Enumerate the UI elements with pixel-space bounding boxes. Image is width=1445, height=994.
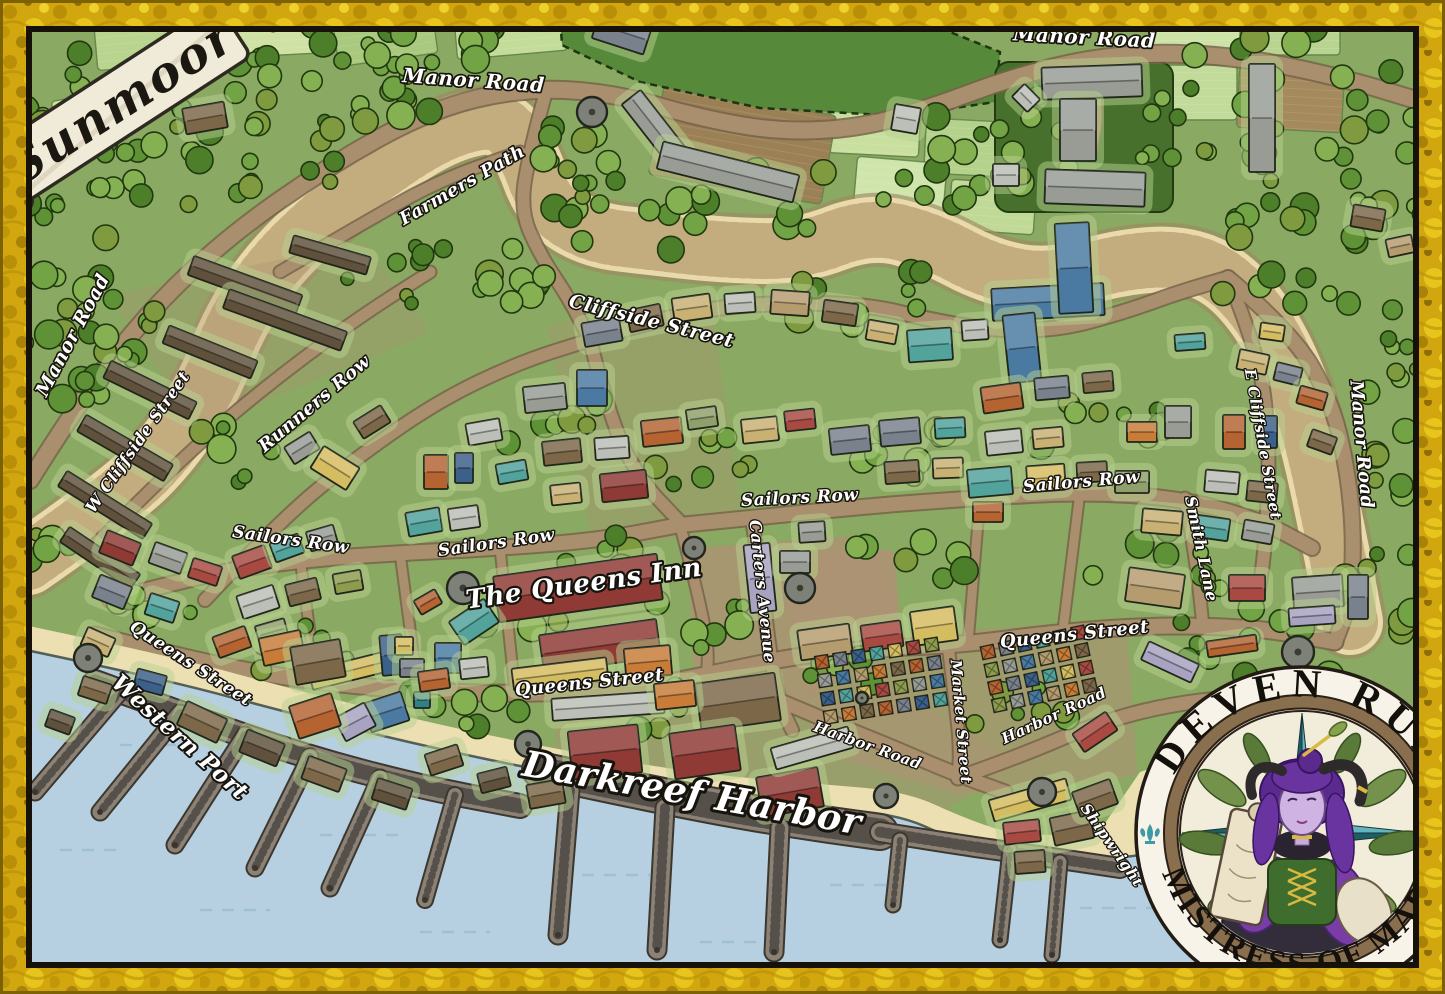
tree — [68, 41, 92, 65]
tree — [130, 184, 153, 207]
roof-highlight — [1127, 422, 1157, 432]
building — [1024, 418, 1073, 458]
tree — [1226, 224, 1252, 250]
building — [820, 416, 880, 464]
tree — [1366, 110, 1388, 132]
building — [870, 409, 929, 456]
tree — [1283, 291, 1307, 315]
tree — [1383, 300, 1403, 320]
tree — [1143, 104, 1161, 122]
tree — [323, 174, 338, 189]
building — [762, 281, 819, 325]
tree — [1154, 91, 1170, 107]
tree — [478, 271, 503, 296]
building — [447, 445, 481, 491]
tree — [1379, 60, 1403, 84]
building — [514, 374, 576, 422]
tree — [573, 175, 589, 191]
tree — [301, 162, 319, 180]
building — [1052, 91, 1104, 169]
tree — [258, 64, 282, 88]
tree — [186, 147, 213, 174]
tree — [811, 160, 836, 185]
tree — [1089, 403, 1108, 422]
tree — [902, 284, 915, 297]
dock-post — [555, 932, 561, 938]
tower-peak — [883, 793, 888, 798]
tree — [117, 144, 135, 162]
tree — [94, 324, 119, 349]
tree — [324, 151, 344, 171]
tree — [666, 476, 681, 491]
tree — [1296, 268, 1316, 288]
tree — [1315, 138, 1338, 161]
frame-left — [0, 0, 28, 994]
tree — [605, 525, 626, 546]
fantasy-town-map: Manor RoadManor RoadManor RoadManor Road… — [0, 0, 1445, 994]
tree — [388, 253, 406, 271]
building — [586, 427, 639, 468]
tree — [1400, 339, 1415, 354]
tree — [93, 225, 119, 251]
tree — [65, 66, 81, 82]
building — [813, 291, 868, 336]
tree — [387, 101, 415, 129]
building — [541, 474, 591, 515]
tree — [974, 127, 989, 142]
tree — [572, 128, 597, 153]
tree — [895, 169, 912, 186]
tree — [1340, 116, 1368, 144]
building — [976, 419, 1032, 464]
roof-ridge — [936, 468, 960, 469]
artist-logo: DEVEN RUE MISTRESS OF MAPS — [1136, 660, 1445, 994]
tree — [990, 120, 1008, 138]
dock-post — [32, 789, 38, 795]
building — [882, 95, 931, 144]
tree — [1182, 43, 1207, 68]
tower-peak — [85, 655, 91, 661]
building — [958, 457, 1022, 506]
roof-highlight — [1348, 575, 1368, 597]
tree — [482, 686, 508, 712]
dock-post — [422, 897, 428, 903]
frame-top — [0, 0, 1445, 28]
tree — [141, 132, 167, 158]
building — [1046, 214, 1101, 322]
dock-post — [252, 865, 258, 871]
dock-post — [1049, 952, 1055, 958]
tree — [915, 186, 934, 205]
building — [1241, 56, 1283, 180]
tree — [692, 466, 714, 488]
roof-highlight — [395, 637, 413, 646]
tree — [1197, 143, 1213, 159]
building — [409, 659, 460, 701]
building — [1116, 558, 1194, 618]
tree — [242, 153, 258, 169]
tree — [364, 42, 390, 68]
tree — [1381, 331, 1397, 347]
building — [1036, 161, 1154, 215]
tree — [910, 261, 932, 283]
portrait-corset — [1268, 859, 1336, 925]
tree — [658, 236, 685, 263]
tree — [1322, 286, 1337, 301]
tree — [353, 108, 379, 134]
tree — [507, 700, 530, 723]
tree — [1261, 193, 1280, 212]
tree — [1387, 363, 1405, 381]
tree — [693, 640, 708, 655]
roof-highlight — [993, 164, 1019, 175]
building — [985, 156, 1027, 194]
building — [876, 451, 929, 492]
tower-peak — [861, 697, 864, 700]
tree — [571, 231, 592, 252]
tree — [1173, 614, 1189, 630]
tree — [1169, 109, 1186, 126]
tree — [539, 125, 562, 148]
tree — [217, 421, 230, 434]
dock-post — [654, 947, 660, 953]
building — [716, 283, 764, 322]
building — [1221, 567, 1273, 609]
building — [1340, 567, 1376, 627]
frame-bottom — [0, 966, 1445, 994]
building — [1166, 324, 1214, 359]
tree — [1011, 708, 1024, 721]
tree — [180, 196, 197, 213]
tree — [452, 689, 478, 715]
tower-peak — [589, 109, 596, 116]
building — [439, 496, 490, 540]
tree — [876, 192, 891, 207]
roof-highlight — [1003, 313, 1038, 350]
building — [775, 400, 825, 441]
dock-post — [997, 937, 1003, 943]
building — [533, 429, 591, 474]
dock-post — [327, 885, 333, 891]
tree — [334, 52, 351, 69]
tree — [1083, 566, 1102, 585]
building — [790, 513, 834, 552]
roof-highlight — [1060, 99, 1096, 130]
tree — [207, 435, 236, 464]
tree — [76, 372, 95, 391]
building — [1025, 367, 1078, 409]
tree — [1347, 89, 1368, 110]
tree — [798, 219, 815, 236]
tower-peak — [797, 585, 804, 592]
tree — [1258, 261, 1285, 288]
tree — [533, 265, 556, 288]
tree — [51, 199, 65, 213]
tree — [1331, 65, 1355, 89]
tree — [558, 160, 576, 178]
tree — [79, 392, 95, 408]
tree — [1337, 292, 1360, 315]
roof-highlight — [1165, 406, 1191, 422]
tree — [732, 461, 748, 477]
tree — [1341, 169, 1361, 189]
roof-highlight — [455, 453, 473, 468]
tree — [1390, 474, 1413, 497]
building — [898, 319, 961, 371]
tree — [530, 145, 556, 171]
tree — [412, 244, 434, 266]
building — [677, 397, 728, 439]
tree — [928, 136, 955, 163]
tree — [1163, 149, 1181, 167]
building — [1280, 597, 1344, 635]
tree — [950, 557, 978, 585]
tree — [846, 536, 868, 558]
tree — [416, 98, 442, 124]
dock-post — [97, 809, 103, 815]
artist-logo-layer: DEVEN RUE MISTRESS OF MAPS — [1136, 660, 1445, 994]
tree — [894, 548, 917, 571]
roof-highlight — [1249, 64, 1275, 118]
tree — [302, 71, 323, 92]
tree — [30, 261, 58, 289]
tree — [405, 297, 418, 310]
tree — [1136, 151, 1149, 164]
building — [1157, 398, 1199, 446]
building — [281, 630, 355, 695]
tree — [90, 178, 110, 198]
tree — [1183, 81, 1199, 97]
tree — [908, 299, 926, 317]
map-svg: Manor RoadManor RoadManor RoadManor Road… — [0, 0, 1445, 994]
tree — [256, 89, 277, 110]
tree — [245, 118, 263, 136]
tree — [1282, 29, 1311, 58]
building — [1006, 841, 1055, 882]
tree — [559, 204, 582, 227]
tree — [435, 240, 453, 258]
tree — [459, 716, 474, 731]
roof-highlight — [424, 455, 448, 472]
tree — [606, 171, 625, 190]
tree — [591, 195, 609, 213]
tree — [501, 291, 523, 313]
building — [1215, 407, 1253, 457]
roof-highlight — [577, 370, 607, 388]
tree — [666, 187, 693, 214]
tree — [639, 200, 660, 221]
building — [1250, 313, 1294, 350]
roof-highlight — [1055, 222, 1091, 269]
tree — [1370, 547, 1384, 561]
tree — [1211, 282, 1235, 306]
building — [926, 409, 974, 447]
roof-highlight — [1223, 415, 1245, 432]
dock-post — [172, 842, 178, 848]
building — [971, 373, 1032, 422]
tree — [309, 30, 336, 57]
building — [591, 461, 657, 511]
dock-post — [771, 949, 777, 955]
tree — [238, 469, 252, 483]
roof-highlight — [1229, 575, 1265, 588]
tower-peak — [1294, 648, 1301, 655]
tower-peak — [1039, 789, 1045, 795]
building — [1074, 362, 1123, 402]
tree — [1280, 207, 1304, 231]
tree — [320, 117, 344, 141]
tree — [952, 186, 976, 210]
tree — [144, 301, 165, 322]
tree — [239, 175, 262, 198]
dock-post — [890, 902, 896, 908]
tower-peak — [692, 546, 697, 551]
roof-highlight — [780, 551, 810, 562]
building — [569, 362, 615, 414]
tree — [502, 239, 522, 259]
frame-right — [1417, 0, 1445, 994]
dock-planks — [774, 828, 780, 952]
